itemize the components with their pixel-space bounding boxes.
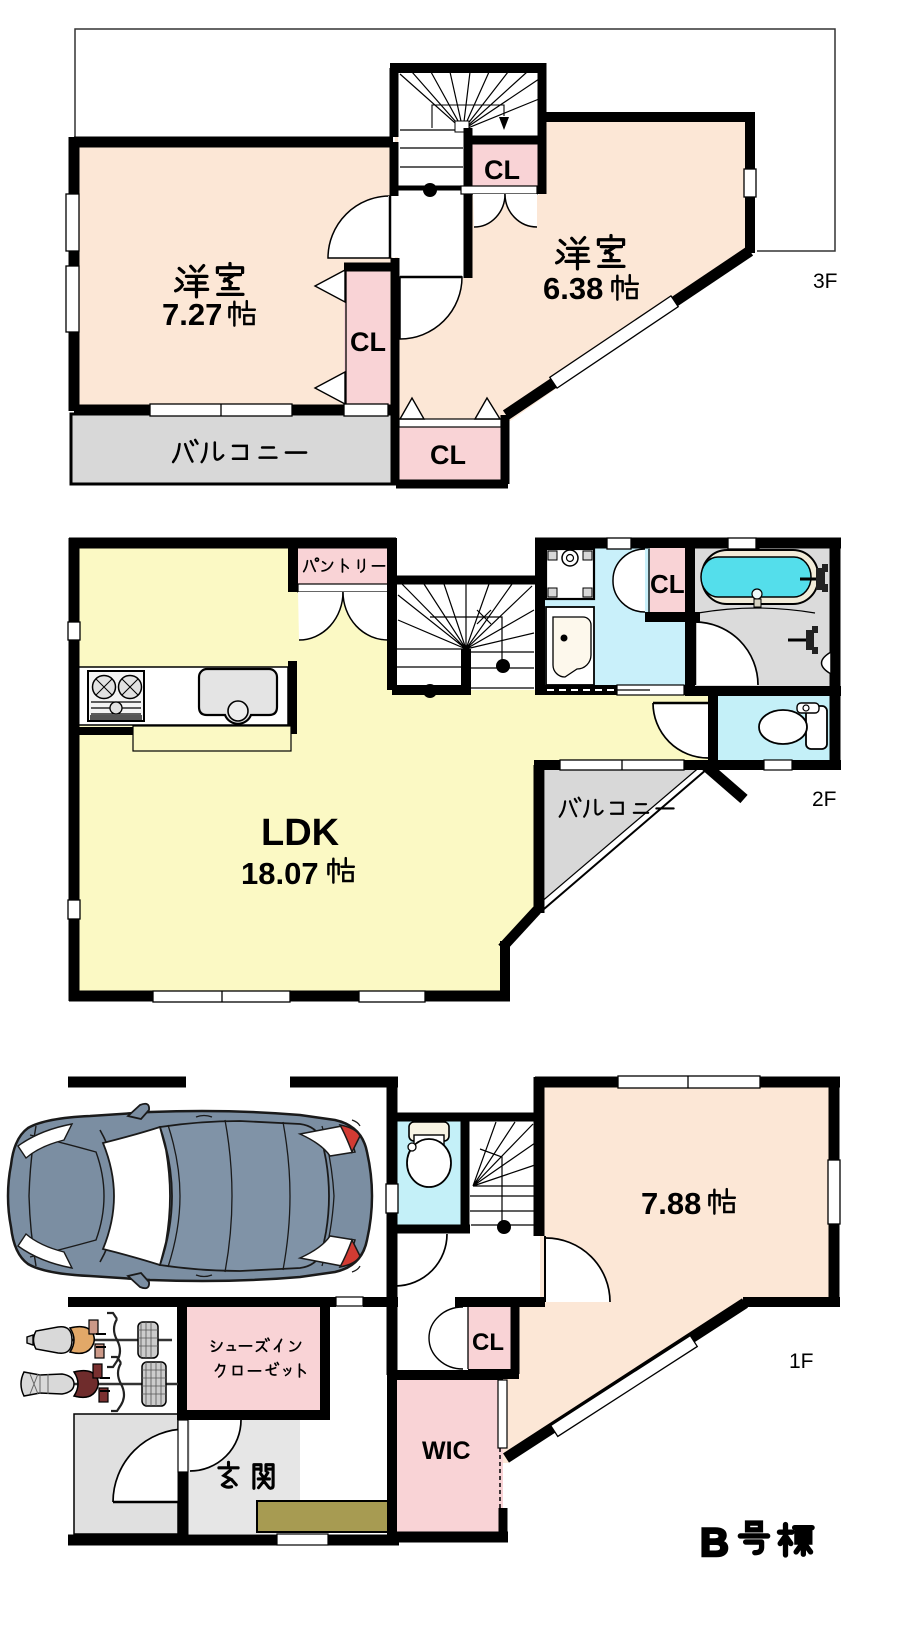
- svg-text:WIC: WIC: [422, 1437, 471, 1465]
- svg-text:CL: CL: [650, 569, 685, 599]
- svg-text:18.07: 18.07: [241, 856, 319, 891]
- svg-text:B: B: [700, 1521, 729, 1565]
- svg-text:6.38: 6.38: [543, 271, 603, 306]
- svg-text:CL: CL: [484, 155, 520, 185]
- svg-text:CL: CL: [472, 1329, 504, 1356]
- svg-text:7.27: 7.27: [162, 297, 222, 332]
- svg-text:LDK: LDK: [261, 812, 340, 854]
- svg-text:2F: 2F: [812, 788, 837, 811]
- svg-text:3F: 3F: [813, 270, 838, 293]
- svg-text:7.88: 7.88: [641, 1186, 701, 1221]
- svg-text:CL: CL: [430, 440, 466, 470]
- svg-text:1F: 1F: [789, 1350, 814, 1373]
- svg-text:CL: CL: [350, 327, 386, 357]
